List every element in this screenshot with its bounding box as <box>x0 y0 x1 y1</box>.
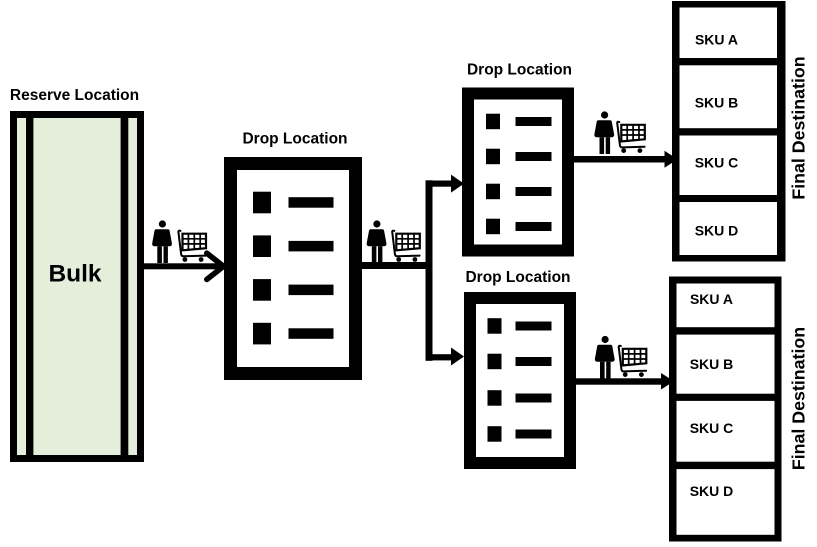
svg-text:SKU B: SKU B <box>695 94 739 110</box>
svg-text:SKU C: SKU C <box>690 420 734 436</box>
svg-text:Drop Location: Drop Location <box>467 62 572 79</box>
svg-text:SKU C: SKU C <box>695 155 739 171</box>
svg-text:SKU A: SKU A <box>695 32 738 48</box>
svg-text:SKU B: SKU B <box>690 356 734 372</box>
svg-text:Final Destination: Final Destination <box>789 327 809 470</box>
svg-text:SKU D: SKU D <box>695 223 739 239</box>
svg-text:SKU A: SKU A <box>690 291 733 307</box>
svg-text:Final Destination: Final Destination <box>789 56 809 199</box>
svg-text:Drop Location: Drop Location <box>242 131 347 148</box>
svg-text:Reserve Location: Reserve Location <box>10 87 139 104</box>
svg-text:Bulk: Bulk <box>48 261 101 288</box>
svg-text:SKU D: SKU D <box>690 483 734 499</box>
svg-text:Drop Location: Drop Location <box>465 269 570 286</box>
